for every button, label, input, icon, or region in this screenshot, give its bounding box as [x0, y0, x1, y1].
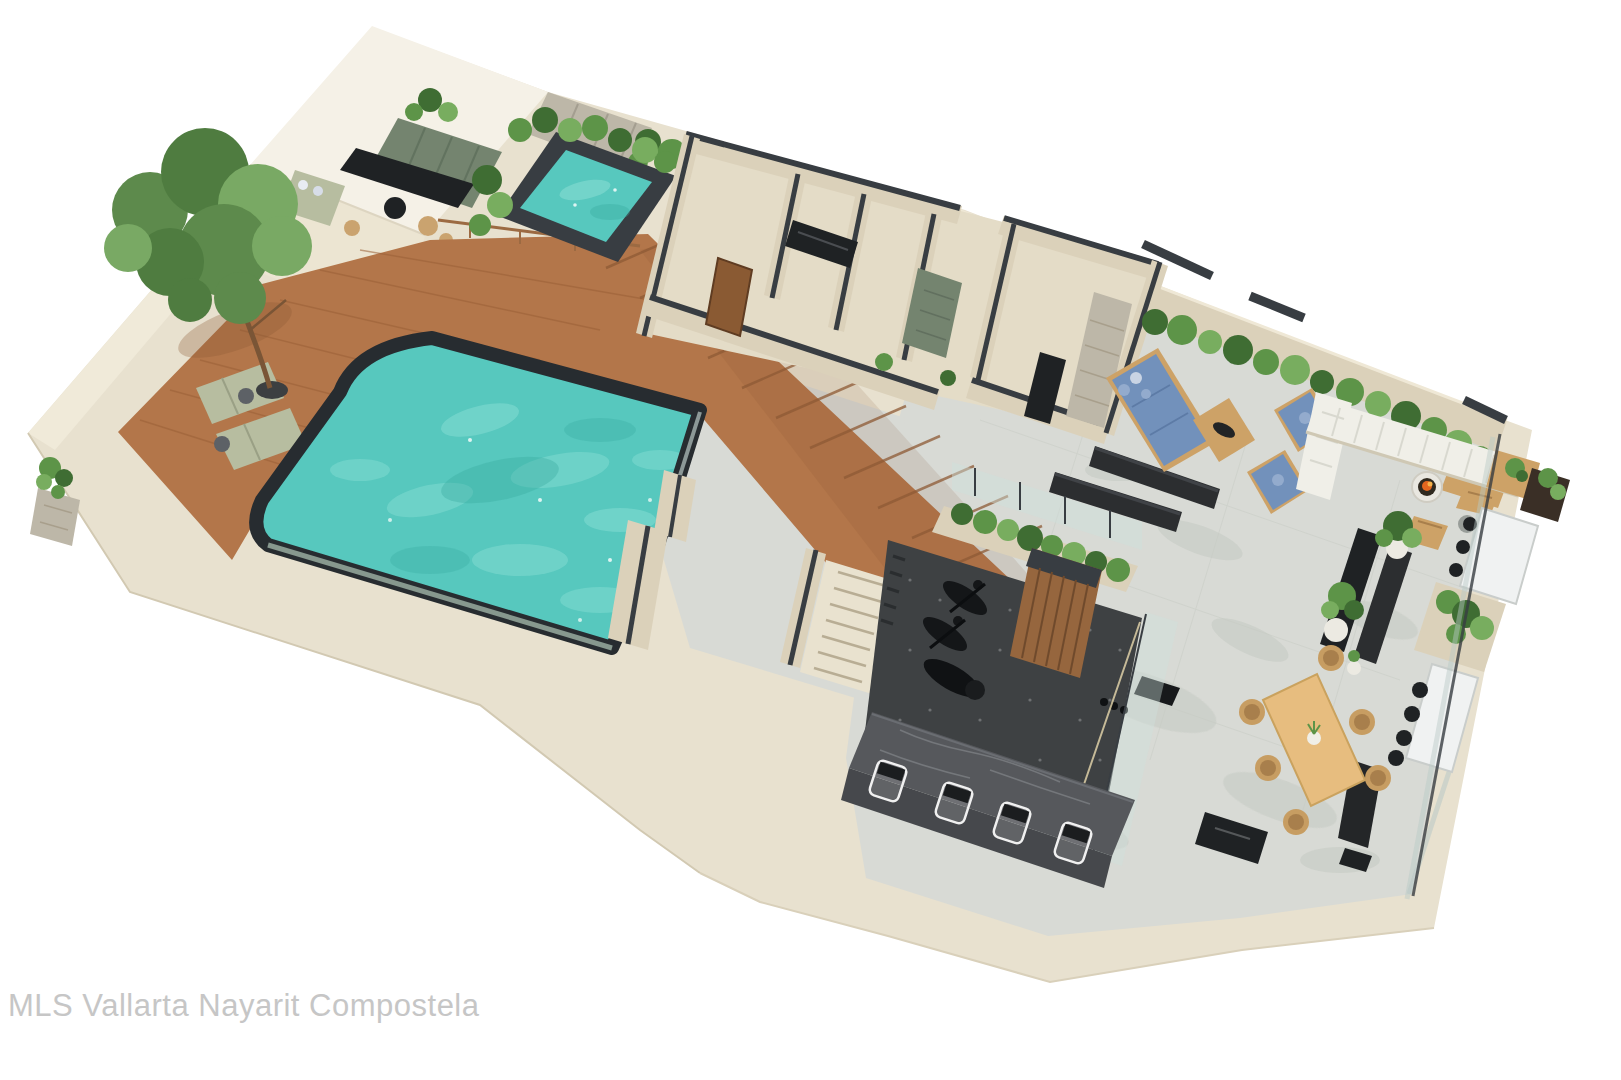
pouf	[214, 436, 230, 452]
watermark-text: MLS Vallarta Nayarit Compostela	[8, 988, 480, 1023]
fire-bowl	[1412, 472, 1442, 502]
floorplan-render: MLS Vallarta Nayarit Compostela	[0, 0, 1621, 1080]
plant	[875, 353, 893, 371]
bench-pillow	[298, 180, 308, 190]
floorplan-svg: MLS Vallarta Nayarit Compostela	[0, 0, 1621, 1080]
stump-stool	[344, 220, 360, 236]
plant	[940, 370, 956, 386]
tree-planter	[256, 381, 288, 399]
stump-stool	[418, 216, 438, 236]
bench-pillow	[313, 186, 323, 196]
pouf	[238, 388, 254, 404]
round-side-table	[384, 197, 406, 219]
